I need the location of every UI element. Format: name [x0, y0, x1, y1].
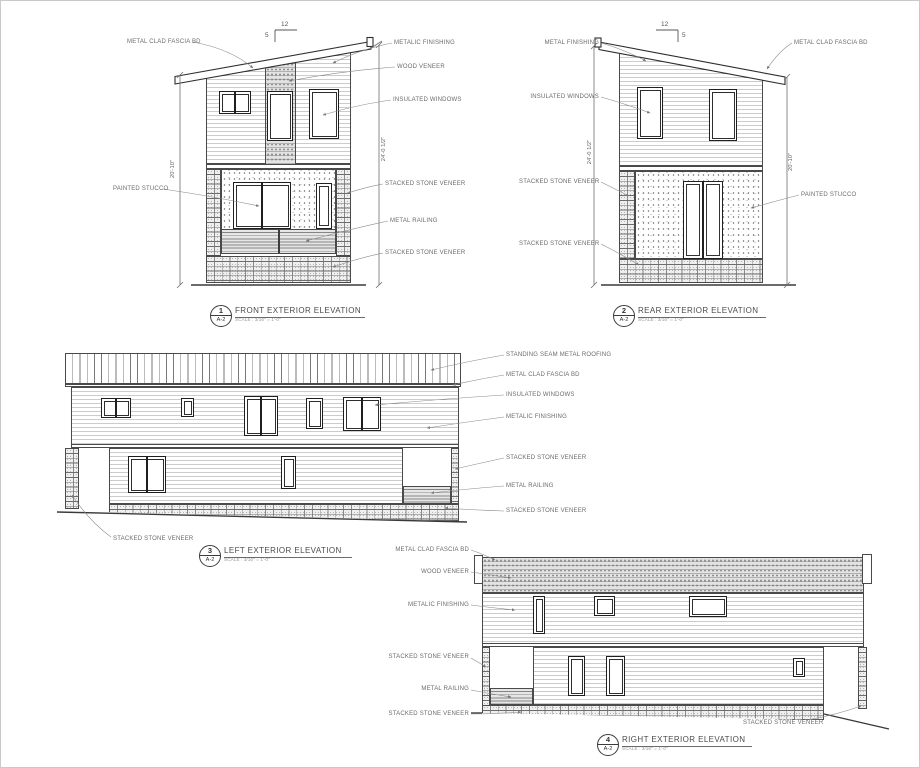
left-label-stone-bottom: STACKED STONE VENEER: [113, 536, 193, 542]
left-lower-window-1: [128, 456, 166, 493]
left-stone-base: [109, 504, 459, 521]
sheet-number: A-2: [614, 316, 634, 324]
elevation-sheet: METAL CLAD FASCIA BD PAINTED STUCCO META…: [0, 0, 920, 768]
right-label-wood-veneer: WOOD VENEER: [384, 569, 469, 575]
title-bubble-3: 3 A-2: [199, 545, 221, 567]
rear-label-stone-upper: STACKED STONE VENEER: [519, 179, 599, 185]
front-label-fascia: METAL CLAD FASCIA BD: [127, 39, 193, 45]
view-number: 4: [598, 735, 618, 745]
view-title-2: REAR EXTERIOR ELEVATION: [638, 306, 766, 318]
right-upper-window-3: [689, 596, 727, 617]
right-stone-pier-right: [858, 647, 867, 709]
rear-door-left: [683, 181, 703, 259]
title-bubble-1: 1 A-2: [210, 305, 232, 327]
left-label-stone-upper: STACKED STONE VENEER: [506, 455, 586, 461]
left-metal-railing: [403, 486, 451, 504]
left-roof-standing-seam: [65, 353, 461, 384]
rear-dim-left: 24'-0 1/2": [587, 133, 593, 171]
front-stone-pier-right: [336, 169, 351, 256]
front-label-railing: METAL RAILING: [390, 218, 438, 224]
view-number: 3: [200, 546, 220, 556]
front-upper-window-center: [267, 91, 293, 141]
right-label-railing: METAL RAILING: [384, 686, 469, 692]
front-dim-right: 24'-0 1/2": [381, 130, 387, 168]
right-metal-railing: [490, 688, 533, 705]
view-title-3: LEFT EXTERIOR ELEVATION: [224, 546, 352, 558]
rear-dim-right: 20'-10": [788, 147, 794, 177]
right-label-stone-lower: STACKED STONE VENEER: [384, 711, 469, 717]
rear-window-left: [637, 87, 663, 139]
front-metal-railing: [221, 229, 336, 254]
left-label-railing: METAL RAILING: [506, 483, 554, 489]
front-lower-window: [233, 182, 291, 229]
front-label-windows: INSULATED WINDOWS: [393, 97, 462, 103]
front-label-stucco: PAINTED STUCCO: [113, 186, 163, 192]
left-label-metal-finishing: METALIC FINISHING: [506, 414, 567, 420]
sheet-number: A-2: [598, 745, 618, 753]
right-label-stone-upper: STACKED STONE VENEER: [384, 654, 469, 660]
right-stone-pier-left: [482, 647, 490, 707]
rear-label-fascia: METAL CLAD FASCIA BD: [794, 40, 868, 46]
rear-label-metal-finishing: METAL FINISHING: [539, 40, 599, 46]
front-label-stone-lower: STACKED STONE VENEER: [385, 250, 465, 256]
front-dim-left: 20'-10": [170, 154, 176, 184]
title-bubble-4: 4 A-2: [597, 734, 619, 756]
slope-symbols: [275, 30, 678, 42]
rear-slope-rise: 5: [682, 32, 686, 39]
left-label-fascia: METAL CLAD FASCIA BD: [506, 372, 580, 378]
view-number: 2: [614, 306, 634, 316]
left-label-roofing: STANDING SEAM METAL ROOFING: [506, 352, 611, 358]
rear-label-stucco: PAINTED STUCCO: [801, 192, 856, 198]
rear-door-right: [703, 181, 723, 259]
rear-stone-pier-left: [619, 171, 635, 259]
rear-label-stone-lower: STACKED STONE VENEER: [519, 241, 599, 247]
left-upper-window-2: [181, 398, 194, 417]
front-upper-window-small: [219, 91, 251, 114]
right-lower-window-1: [568, 656, 585, 696]
front-stone-base: [206, 256, 351, 283]
left-stone-pier-left: [65, 448, 79, 509]
sheet-number: A-2: [211, 316, 231, 324]
left-upper-window-3: [244, 396, 278, 436]
left-upper-window-1: [101, 398, 131, 418]
left-upper-window-4: [306, 398, 323, 429]
right-lower-window-3: [793, 658, 805, 677]
right-label-fascia: METAL CLAD FASCIA BD: [384, 547, 469, 553]
right-roof-wood-veneer-band: [482, 557, 864, 593]
left-label-windows: INSULATED WINDOWS: [506, 392, 575, 398]
front-label-metal-finishing: METALIC FINISHING: [394, 40, 455, 46]
view-title-1: FRONT EXTERIOR ELEVATION: [235, 306, 365, 318]
left-label-stone-base: STACKED STONE VENEER: [506, 508, 586, 514]
right-lower-window-2: [606, 656, 625, 696]
sheet-number: A-2: [200, 556, 220, 564]
view-scale-1: SCALE : 3/16" = 1'-0": [235, 318, 281, 323]
right-fascia-tab-right: [862, 554, 872, 584]
rear-slope-run: 12: [661, 21, 668, 28]
right-upper-window-2: [594, 596, 615, 616]
right-stone-base: [482, 705, 824, 720]
view-scale-3: SCALE : 3/16" = 1'-0": [224, 558, 270, 563]
view-number: 1: [211, 306, 231, 316]
view-title-4: RIGHT EXTERIOR ELEVATION: [622, 735, 752, 747]
view-scale-4: SCALE : 3/16" = 1'-0": [622, 747, 668, 752]
front-upper-window-right: [309, 89, 339, 139]
front-door: [316, 183, 332, 229]
railing-post: [278, 230, 280, 253]
rear-window-right: [709, 89, 737, 141]
right-label-stone-bottom: STACKED STONE VENEER: [743, 720, 823, 726]
rear-label-windows: INSULATED WINDOWS: [529, 94, 599, 100]
rear-stone-base: [619, 259, 763, 283]
front-label-wood-veneer: WOOD VENEER: [397, 64, 445, 70]
front-slope-run: 12: [281, 21, 288, 28]
left-upper-window-5: [343, 397, 381, 431]
right-upper-window-1: [533, 596, 545, 634]
title-bubble-2: 2 A-2: [613, 305, 635, 327]
left-lower-window-2: [281, 456, 296, 489]
view-scale-2: SCALE : 3/16" = 1'-0": [638, 318, 684, 323]
left-stone-pier-right: [451, 448, 459, 504]
front-slope-rise: 5: [265, 32, 269, 39]
right-label-metal-finishing: METALIC FINISHING: [384, 602, 469, 608]
front-label-stone-upper: STACKED STONE VENEER: [385, 181, 465, 187]
front-stone-pier-left: [206, 169, 221, 256]
right-fascia-tab-left: [474, 555, 483, 584]
